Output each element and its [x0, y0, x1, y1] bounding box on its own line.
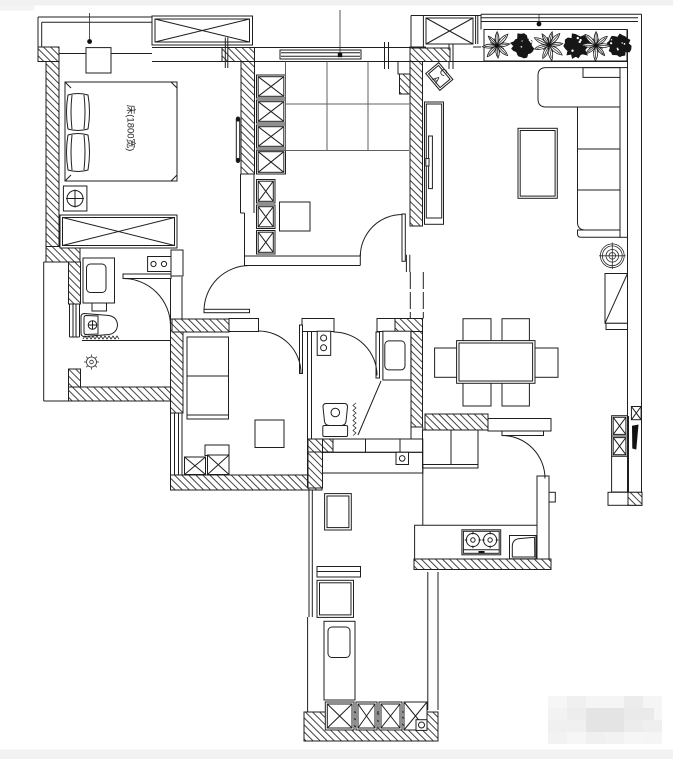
- svg-text:床(1800宽): 床(1800宽): [125, 105, 137, 151]
